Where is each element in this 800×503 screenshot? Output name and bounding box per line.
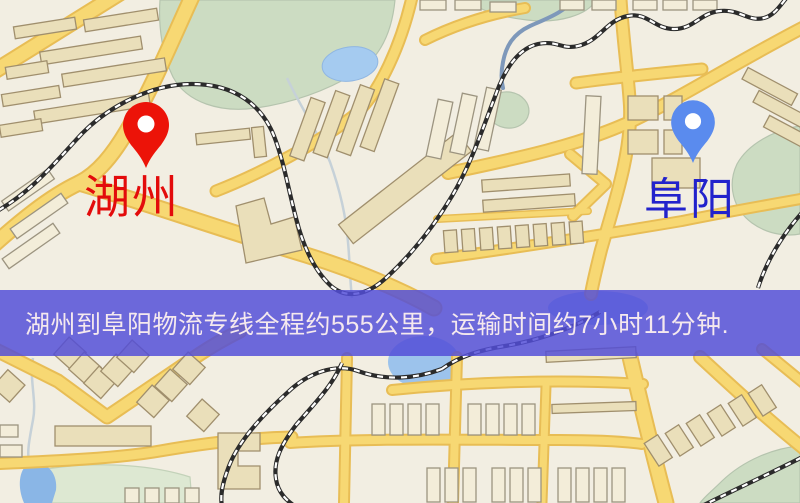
origin-city-label: 湖州 (84, 174, 180, 220)
map-canvas (0, 0, 800, 503)
route-info-text: 湖州到阜阳物流专线全程约555公里，运输时间约7小时11分钟. (25, 305, 729, 341)
route-info-banner: 湖州到阜阳物流专线全程约555公里，运输时间约7小时11分钟. (0, 290, 800, 356)
map-screenshot: 湖州 阜阳 湖州到阜阳物流专线全程约555公里，运输时间约7小时11分钟. (0, 0, 800, 503)
destination-city-label: 阜阳 (644, 178, 736, 222)
destination-pin-hole (685, 113, 701, 129)
origin-pin-hole (138, 116, 155, 133)
